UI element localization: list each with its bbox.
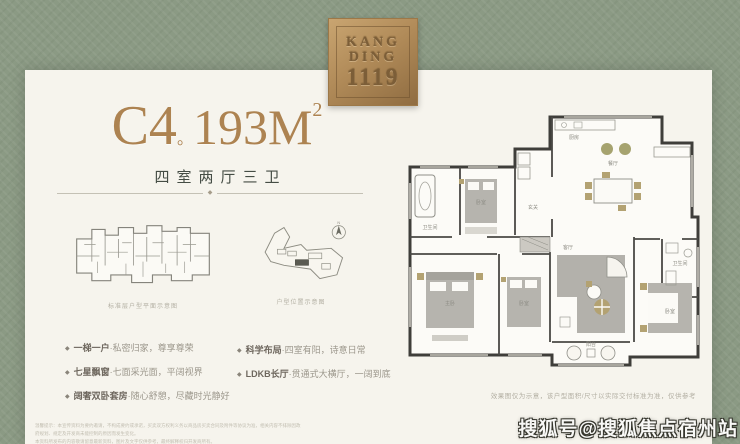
divider-diamond-icon: ◆ [203,190,218,196]
mini-floor-plan-caption: 标准层户型平面示意图 [67,301,219,310]
feature-desc: ·四室有阳，诗意日常 [282,345,366,355]
feature-item: ◆一梯一户·私密归家，尊享尊荣 [65,342,237,355]
brand-logo: KANG DING 1119 [328,18,418,106]
north-compass-icon: N [332,221,345,239]
bullet-diamond-icon: ◆ [237,372,242,378]
content-card: C4。193M2 四室两厅三卫 ◆ 标准层户型平面示意图 [25,70,712,444]
disclaimer-text: 温馨提示：本宣传资料为要约邀请，不构成要约或承诺，买卖双方权利义务以商品房买卖合… [35,422,303,444]
feature-title: LDKB长厅 [246,369,289,379]
feature-title: 科学布局 [246,345,282,355]
logo-text-kang: KANG [346,35,400,50]
room-label-dining: 餐厅 [608,160,618,167]
unit-title-dot: 。 [177,131,193,148]
feature-list-right: ◆科学布局·四室有阳，诗意日常 ◆LDKB长厅·贯通式大横厅，一阔到底 [237,344,405,392]
room-label-master: 主卧 [445,300,455,307]
feature-title: 阔奢双卧套房 [74,391,128,401]
logo-text-ding: DING [349,50,398,65]
poster-background: C4。193M2 四室两厅三卫 ◆ 标准层户型平面示意图 [0,0,740,444]
brand-logo-inner: KANG DING 1119 [336,26,410,98]
unit-code: C4 [112,95,177,157]
mini-floor-plan: 标准层户型平面示意图 [67,220,219,310]
mini-site-plan: N 户型位置示意图 [249,220,353,306]
feature-title: 七星飘窗 [74,367,110,377]
bullet-diamond-icon: ◆ [237,348,242,354]
north-label: N [337,221,340,225]
feature-item: ◆阔奢双卧套房·随心舒憩，尽藏时光静好 [65,390,237,403]
sohu-watermark: 搜狐号@搜狐焦点宿州站 [518,414,738,441]
logo-text-1119: 1119 [346,66,399,90]
room-label-kitchen: 厨房 [569,134,579,141]
disclaimer-line-2: 本资料所发布的内容敬请留意最新资料，图片及文字仅供参考，最终解释权归开发商所有。 [35,438,303,444]
room-label-bath-a: 卫生间 [422,224,437,231]
unit-subtitle: 四室两厅三卫 [37,166,397,187]
bullet-diamond-icon: ◆ [65,394,70,400]
unit-area: 193M [193,99,312,155]
mini-floor-plan-drawing [69,220,217,292]
unit-header: C4。193M2 四室两厅三卫 [37,98,397,187]
feature-desc: ·贯通式大横厅，一阔到底 [289,369,391,379]
room-label-bath-b: 卫生间 [672,260,687,267]
highlighted-unit-marker [295,260,308,266]
living-room-sofa [557,255,627,333]
feature-item: ◆七星飘窗·七面采光面，平阔视界 [65,366,237,379]
disclaimer-line-1: 温馨提示：本宣传资料为要约邀请，不构成要约或承诺，买卖双方权利义务以商品房买卖合… [35,422,303,438]
mini-site-plan-caption: 户型位置示意图 [249,297,353,306]
floor-plan-caption: 效果图仅为示意，该户型面积/尺寸以实际交付标准为准，仅供参考 [491,390,696,400]
bullet-diamond-icon: ◆ [65,370,70,376]
main-floor-plan: 卫生间 卧室 玄关 厨房 餐厅 客厅 主卧 卧室 卧室 卫生间 阳台 [402,86,704,370]
divider-line-right [217,193,363,194]
feature-desc: ·随心舒憩，尽藏时光静好 [128,391,230,401]
feature-item: ◆LDKB长厅·贯通式大横厅，一阔到底 [237,368,405,381]
room-label-entry: 玄关 [528,204,538,211]
room-label-bedroom-b: 卧室 [476,199,486,206]
room-label-bedroom-c: 卧室 [519,300,529,307]
feature-desc: ·七面采光面，平阔视界 [110,367,203,377]
room-label-living: 客厅 [563,244,573,251]
feature-title: 一梯一户 [74,343,110,353]
unit-title: C4。193M2 [37,98,397,154]
feature-list-left: ◆一梯一户·私密归家，尊享尊荣 ◆七星飘窗·七面采光面，平阔视界 ◆阔奢双卧套房… [65,342,237,414]
room-label-balcony: 阳台 [586,341,596,348]
feature-item: ◆科学布局·四室有阳，诗意日常 [237,344,405,357]
feature-desc: ·私密归家，尊享尊荣 [110,343,194,353]
room-label-bedroom-d: 卧室 [665,308,675,315]
divider-line-left [57,193,203,194]
bullet-diamond-icon: ◆ [65,346,70,352]
unit-area-sup: 2 [312,99,322,121]
mini-site-plan-drawing: N [251,220,351,288]
section-divider: ◆ [57,190,363,196]
